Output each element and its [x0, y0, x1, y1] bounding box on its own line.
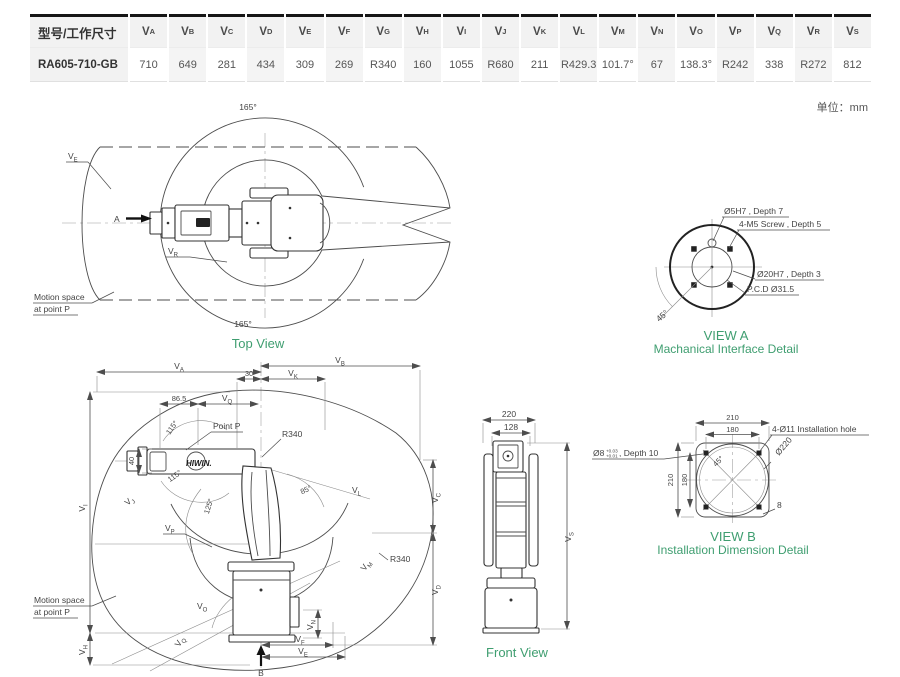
view-b-installation-hole-label: 4-Ø11 Installation hole: [772, 424, 857, 434]
view-a-drawing: Ø5H7 , Depth 7 4-M5 Screw , Depth 5 Ø20H…: [654, 206, 830, 356]
view-b-drawing: 210 180 210 180 4-Ø11 Installation hole …: [592, 413, 869, 557]
dim-30-label: 30: [245, 369, 253, 378]
view-b-dim-180-left-label: 180: [680, 474, 689, 487]
view-b-pin-label: Ø8: [593, 448, 605, 458]
dim-220-label: 220: [502, 409, 516, 419]
top-view-angle-bottom-label: 165°: [234, 319, 252, 329]
dim-vh-label: VH: [77, 645, 90, 655]
view-b-pin-depth-label: , Depth 10: [619, 448, 658, 458]
dim-vl-label: VL: [352, 485, 362, 498]
technical-drawing: 165° 165° VE VR A Motion space at point …: [0, 0, 900, 677]
view-a-screw-label: 4-M5 Screw , Depth 5: [739, 219, 821, 229]
point-p-label: Point P: [213, 421, 241, 431]
view-a-45deg-label: 45°: [654, 308, 670, 324]
top-view-angle-top-label: 165°: [239, 102, 257, 112]
view-b-45deg-label: 45°: [711, 454, 725, 468]
dim-ve-top-label: VE: [68, 151, 78, 164]
dim-vc-label: VC: [430, 492, 443, 503]
section-arrow-a-label: A: [114, 214, 120, 224]
motion-space-note2-line1: Motion space: [34, 595, 85, 605]
robot-side-silhouette: HIWIN.: [127, 447, 299, 642]
dim-vj-label: VJ: [122, 494, 137, 509]
dim-vs-label: VS: [563, 532, 576, 542]
side-view-drawing: HIWIN. VA VB 30 VK 86.5 VQ: [33, 355, 443, 677]
angle-125-label: 125°: [202, 497, 215, 515]
front-view-caption: Front View: [486, 645, 549, 660]
top-view-drawing: 165° 165° VE VR A Motion space at point …: [33, 102, 452, 351]
dim-vi-label: VI: [77, 504, 90, 512]
section-arrow-b-label: B: [258, 668, 264, 677]
view-a-pcd-label: P.C.D Ø31.5: [747, 284, 794, 294]
view-b-dia-220-label: Ø220: [773, 435, 794, 458]
motion-space-note-line2: at point P: [34, 304, 70, 314]
motion-space-note-line1: Motion space: [34, 292, 85, 302]
view-b-dim-210-top-label: 210: [726, 413, 739, 422]
view-b-pin-tol-lower: +0.01: [606, 454, 618, 459]
top-view-caption: Top View: [232, 336, 285, 351]
dim-40-label: 40: [127, 457, 136, 465]
view-b-dim-210-left-label: 210: [666, 474, 675, 487]
dim-vp-label: VP: [165, 523, 175, 536]
robot-top-silhouette: [150, 188, 330, 258]
dim-vo-label: VO: [197, 601, 208, 614]
view-a-pin-hole-label: Ø5H7 , Depth 7: [724, 206, 783, 216]
dim-86-5-label: 86.5: [172, 394, 187, 403]
brand-logo-text: HIWIN.: [186, 459, 212, 468]
dim-128-label: 128: [504, 422, 518, 432]
view-a-bore-label: Ø20H7 , Depth 3: [757, 269, 821, 279]
dim-vq-bottom-label: VQ: [172, 634, 188, 650]
dim-vr-label: VR: [168, 246, 179, 259]
view-b-dim-180-top-label: 180: [726, 425, 739, 434]
angle-85-label: 85°: [299, 483, 313, 496]
robot-front-silhouette: [483, 441, 539, 633]
datasheet-page: { "colors": {"accent_green": "#3f9e70", …: [0, 0, 900, 677]
angle-115-top-label: 115°: [164, 419, 180, 436]
view-a-caption-line1: VIEW A: [704, 328, 749, 343]
radius-r340-top-label: R340: [282, 429, 303, 439]
view-b-caption-line1: VIEW B: [710, 529, 756, 544]
view-b-caption-line2: Installation Dimension Detail: [657, 543, 808, 557]
radius-r340-bottom-label: R340: [390, 554, 411, 564]
view-a-caption-line2: Machanical Interface Detail: [654, 342, 799, 356]
dim-vm-label: VM: [358, 558, 374, 574]
dim-vn-label: VN: [305, 620, 318, 630]
view-b-dim-8-label: 8: [777, 500, 782, 510]
section-arrow-b-icon: [257, 645, 266, 655]
motion-space-note2-line2: at point P: [34, 607, 70, 617]
front-view-drawing: 220 128 VS Front View: [483, 409, 576, 660]
dim-vd-label: VD: [430, 584, 443, 595]
